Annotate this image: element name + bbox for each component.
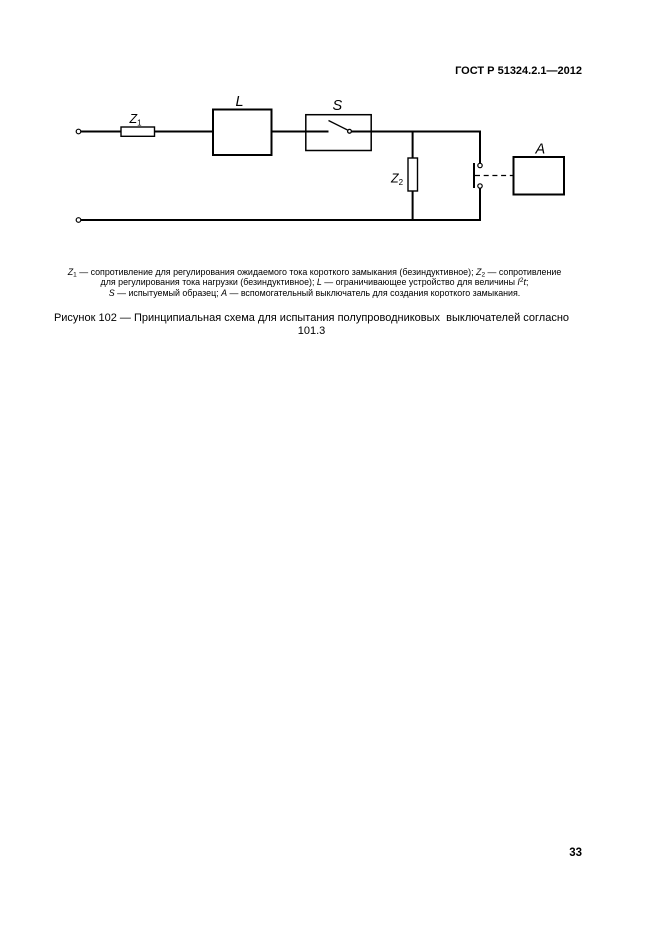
- svg-text:Z1: Z1: [129, 112, 143, 128]
- svg-text:A: A: [535, 142, 546, 158]
- svg-text:S: S: [333, 98, 343, 114]
- svg-text:L: L: [236, 94, 244, 110]
- svg-text:Z2: Z2: [390, 172, 404, 188]
